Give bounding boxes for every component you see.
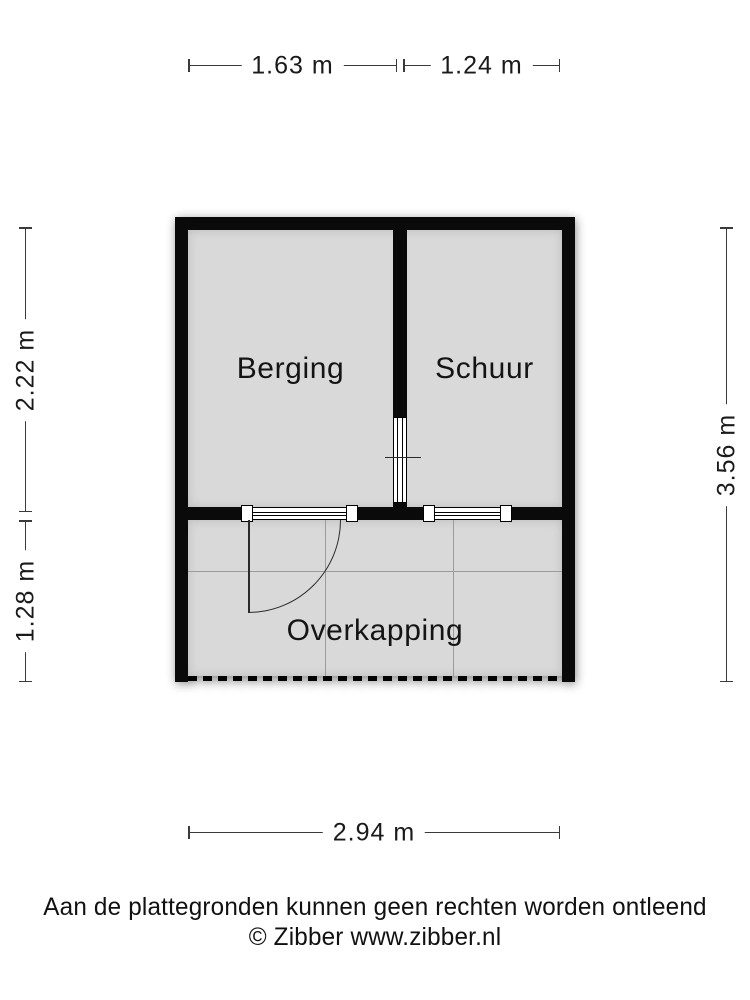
dimension-tick	[19, 681, 32, 683]
overkapping-grid-line	[453, 520, 454, 676]
window-schuur	[423, 505, 512, 522]
wall-top	[175, 217, 575, 230]
room-label-overkapping: Overkapping	[188, 614, 562, 648]
dimension-label-bottom: 2.94 m	[323, 818, 425, 847]
dimension-label-left-lower: 1.28 m	[9, 550, 42, 652]
dimension-label-right: 3.56 m	[710, 403, 743, 505]
dimension-label-left-upper: 2.22 m	[9, 318, 42, 420]
building-outline: Berging Schuur Overkapping	[175, 217, 575, 682]
window-pane	[435, 507, 500, 520]
footer-disclaimer: Aan de plattegronden kunnen geen rechten…	[11, 892, 739, 922]
dimension-tick	[396, 59, 398, 72]
footer-copyright: © Zibber www.zibber.nl	[11, 922, 739, 952]
dimension-tick	[19, 511, 32, 513]
wall-left	[175, 217, 188, 682]
room-label-berging: Berging	[188, 352, 393, 386]
window-center-tick	[385, 457, 421, 458]
overkapping-grid-line	[188, 571, 562, 572]
dimension-tick	[559, 59, 561, 72]
wall-interior-vertical	[393, 230, 407, 417]
dimension-top-right: 1.24 m	[403, 59, 560, 72]
dimension-label-top-left: 1.63 m	[241, 51, 343, 80]
room-label-schuur: Schuur	[407, 352, 562, 386]
overkapping-floor	[188, 520, 562, 676]
wall-right	[562, 217, 575, 682]
dimension-tick	[559, 826, 561, 839]
dimension-label-top-right: 1.24 m	[430, 51, 532, 80]
window-pane	[253, 507, 346, 520]
dimension-right: 3.56 m	[720, 227, 733, 682]
floorplan-page: 1.63 m 1.24 m 2.22 m 1.28 m 3.56 m 2.94 …	[0, 0, 750, 1000]
window-cap	[500, 505, 512, 522]
dimension-bottom: 2.94 m	[188, 826, 560, 839]
window-cap	[346, 505, 358, 522]
dimension-left-lower: 1.28 m	[19, 520, 32, 682]
open-edge-dashed-line	[188, 676, 562, 681]
dimension-top-left: 1.63 m	[188, 59, 397, 72]
window-cap	[423, 505, 435, 522]
dimension-tick	[720, 681, 733, 683]
dimension-left-upper: 2.22 m	[19, 227, 32, 512]
window-interior-vertical	[393, 417, 407, 503]
footer: Aan de plattegronden kunnen geen rechten…	[0, 892, 750, 952]
